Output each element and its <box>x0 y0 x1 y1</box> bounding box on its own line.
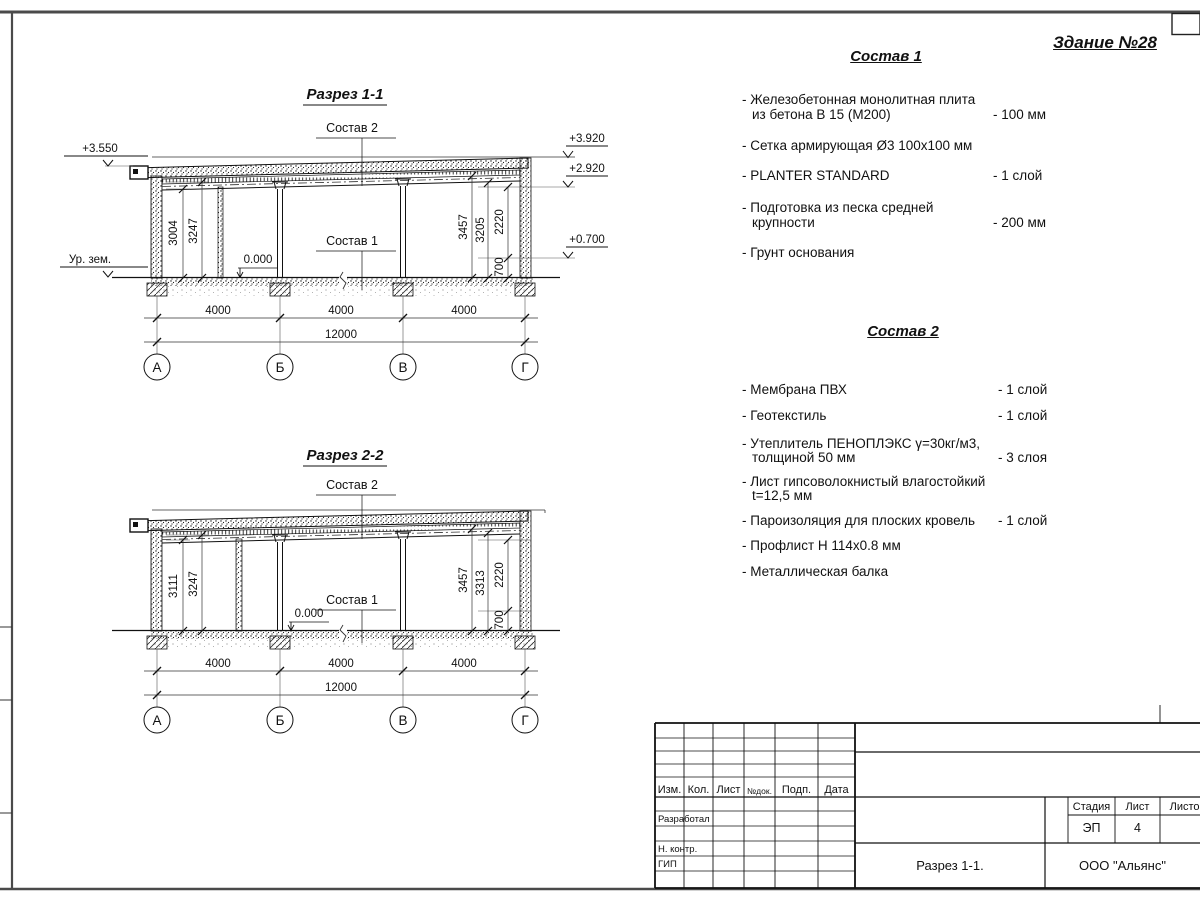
span-dim: 4000 <box>205 305 231 317</box>
comp1-item-line: - PLANTER STANDARD <box>742 168 890 183</box>
comp2-item-line: - Геотекстиль <box>742 408 826 423</box>
section-title: Разрез 2-2 <box>306 447 384 464</box>
roof-composition-label: Состав 2 <box>326 121 378 135</box>
comp1-item-line: - Подготовка из песка средней <box>742 200 933 215</box>
span-dim: 4000 <box>328 658 354 670</box>
tb-col-izm: Изм. <box>655 784 684 796</box>
tb-col-podp: Подп. <box>775 784 818 796</box>
composition-1-title: Состав 1 <box>816 48 956 65</box>
dim-3313: 3313 <box>475 570 487 596</box>
tb-stage-label: Стадия <box>1068 801 1115 813</box>
grid-bubble-label: Г <box>521 713 529 728</box>
comp2-item-line: - Пароизоляция для плоских кровель <box>742 513 975 528</box>
grid-bubble-label: Б <box>276 360 285 375</box>
tb-company: ООО "Альянс" <box>1045 858 1200 873</box>
roof-composition-label: Состав 2 <box>326 478 378 492</box>
comp2-item-line: - Металлическая балка <box>742 564 888 579</box>
comp1-item-value: - 200 мм <box>993 215 1046 230</box>
tb-row-developed: Разработал <box>658 814 710 825</box>
span-dim: 4000 <box>451 658 477 670</box>
grid-bubble-label: А <box>152 713 161 728</box>
tb-col-ndok: №док. <box>744 786 775 796</box>
elev-0700: +0.700 <box>569 234 605 246</box>
comp1-item-line: - Железобетонная монолитная плита <box>742 92 975 107</box>
dim-2220: 2220 <box>494 209 506 235</box>
comp2-item-line: - Профлист Н 114х0.8 мм <box>742 538 901 553</box>
dim-3205: 3205 <box>475 217 487 243</box>
comp1-item-line: - Грунт основания <box>742 245 854 260</box>
comp1-item-value: - 1 слой <box>993 168 1042 183</box>
tb-col-list: Лист <box>713 784 744 796</box>
dim-2220: 2220 <box>494 562 506 588</box>
tb-row-gip: ГИП <box>658 859 677 870</box>
total-dim: 12000 <box>325 329 357 341</box>
comp2-item-value: - 3 слоя <box>998 450 1047 465</box>
tb-col-kol: Кол. <box>684 784 713 796</box>
comp2-item-line: - Утеплитель ПЕНОПЛЭКС γ=30кг/м3, <box>742 436 980 451</box>
grid-bubble-label: Г <box>521 360 529 375</box>
grid-bubble-label: Б <box>276 713 285 728</box>
section-2-2-dimensions: 4000 4000 4000 12000 А Б В Г 3111 3247 <box>144 447 538 733</box>
zero-level-label: 0.000 <box>295 608 324 620</box>
composition-2-title: Состав 2 <box>833 323 973 340</box>
dim-700: 700 <box>494 610 506 629</box>
drawing-sheet: 4000 4000 4000 12000 А Б В Г 3004 3247 <box>0 0 1200 900</box>
building-title: Здание №28 <box>1040 33 1170 53</box>
comp2-item-value: - 1 слой <box>998 408 1047 423</box>
tb-sheet-value: 4 <box>1115 821 1160 835</box>
comp2-item-line: t=12,5 мм <box>752 488 812 503</box>
tb-sheets-label: Листов <box>1160 801 1200 813</box>
elev-3920: +3.920 <box>569 133 605 145</box>
comp1-item-line: - Сетка армирующая Ø3 100х100 мм <box>742 138 972 153</box>
comp2-item-value: - 1 слой <box>998 382 1047 397</box>
comp2-item-value: - 1 слой <box>998 513 1047 528</box>
floor-composition-label: Состав 1 <box>326 234 378 248</box>
grid-bubble-label: А <box>152 360 161 375</box>
comp2-item-line: - Мембрана ПВХ <box>742 382 847 397</box>
zero-level-label: 0.000 <box>244 254 273 266</box>
comp2-item-line: - Лист гипсоволокнистый влагостойкий <box>742 474 985 489</box>
span-dim: 4000 <box>451 305 477 317</box>
comp1-item-line: крупности <box>752 215 815 230</box>
comp2-item-line: толщиной 50 мм <box>752 450 855 465</box>
span-dim: 4000 <box>205 658 231 670</box>
tb-stage-value: ЭП <box>1068 821 1115 835</box>
tb-doc-name: Разрез 1-1. <box>855 858 1045 873</box>
tb-row-ncontr: Н. контр. <box>658 844 697 855</box>
elev-2920: +2.920 <box>569 163 605 175</box>
floor-composition-label: Состав 1 <box>326 593 378 607</box>
dim-3111: 3111 <box>168 574 180 598</box>
dim-700: 700 <box>494 257 506 276</box>
dim-3247: 3247 <box>188 571 200 597</box>
tb-col-data: Дата <box>818 784 855 796</box>
grid-bubble-label: В <box>398 713 407 728</box>
elev-3550: +3.550 <box>82 143 118 155</box>
dim-3004: 3004 <box>168 220 180 246</box>
total-dim: 12000 <box>325 682 357 694</box>
comp1-item-line: из бетона В 15 (М200) <box>752 107 891 122</box>
dim-3457: 3457 <box>458 567 470 593</box>
comp1-item-value: - 100 мм <box>993 107 1046 122</box>
span-dim: 4000 <box>328 305 354 317</box>
dim-3247: 3247 <box>188 218 200 244</box>
grid-bubble-label: В <box>398 360 407 375</box>
tb-sheet-label: Лист <box>1115 801 1160 813</box>
ground-level-label: Ур. зем. <box>69 254 111 266</box>
section-title: Разрез 1-1 <box>306 86 383 103</box>
dim-3457: 3457 <box>458 214 470 240</box>
